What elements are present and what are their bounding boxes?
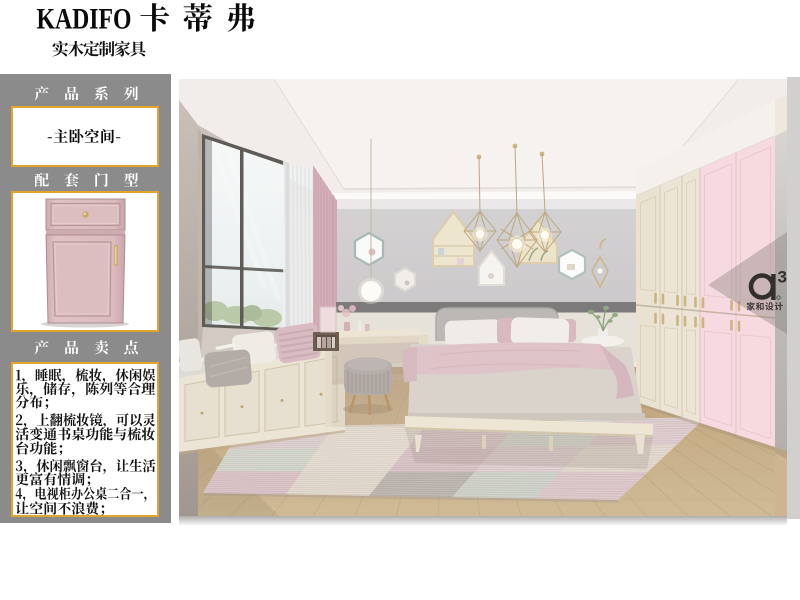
svg-text:KADIFO: KADIFO <box>37 4 132 36</box>
svg-text:3: 3 <box>778 268 787 287</box>
